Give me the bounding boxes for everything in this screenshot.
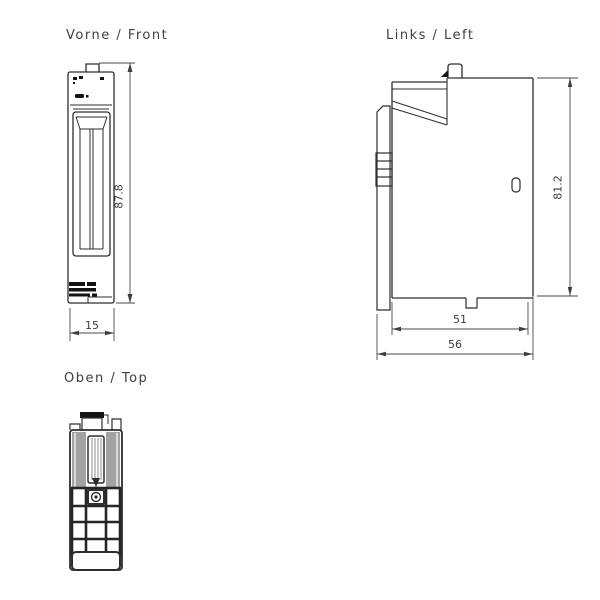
left-view-title: Links / Left [386,28,475,43]
side-opening-hole [512,178,520,192]
front-width-dimension: 15 [78,319,106,332]
led-dot-icon [79,76,83,79]
left-depth-dimension: 56 [437,338,473,351]
left-inner-depth-dimension: 51 [442,313,478,326]
top-center-slot [88,436,104,483]
bus-connector-body [82,418,102,431]
front-view-title: Vorne / Front [66,28,168,43]
top-view-title: Oben / Top [64,371,148,386]
top-bottom-plate [72,552,120,570]
front-module-body [68,72,114,303]
drawing-linework [0,0,600,600]
left-front-strip [377,106,390,310]
top-view-drawing [70,412,122,570]
front-height-dimension: 87.8 [113,180,126,214]
din-clip-tab [448,64,462,78]
led-dot-icon [100,77,104,80]
bus-connector-bar [80,412,104,418]
led-dot-icon [73,77,77,80]
front-label-print [69,282,97,297]
rail-hook [466,298,477,308]
dimension-drawing-canvas: Vorne / Front Links / Left Oben / Top 87… [0,0,600,600]
clip-marker-icon [441,70,448,77]
front-bus-tab [86,64,99,72]
status-led-pill-icon [75,94,84,98]
left-height-dimension: 81.2 [552,171,565,205]
